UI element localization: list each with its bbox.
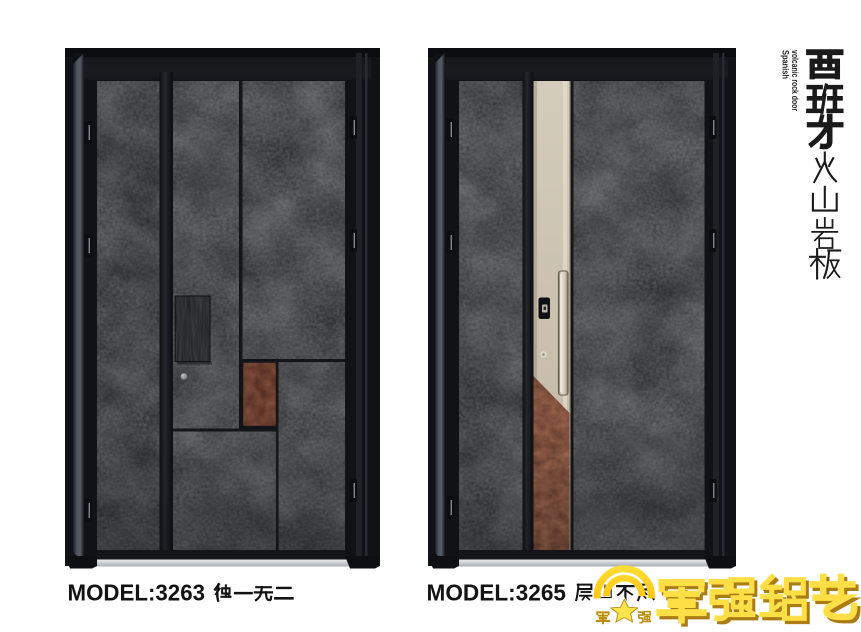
svg-text:volcanic rock door: volcanic rock door [790, 50, 800, 111]
svg-text:Spanish: Spanish [781, 50, 791, 79]
svg-text:MODEL:3265: MODEL:3265 [427, 580, 567, 606]
svg-text:MODEL:3263: MODEL:3263 [68, 580, 206, 606]
